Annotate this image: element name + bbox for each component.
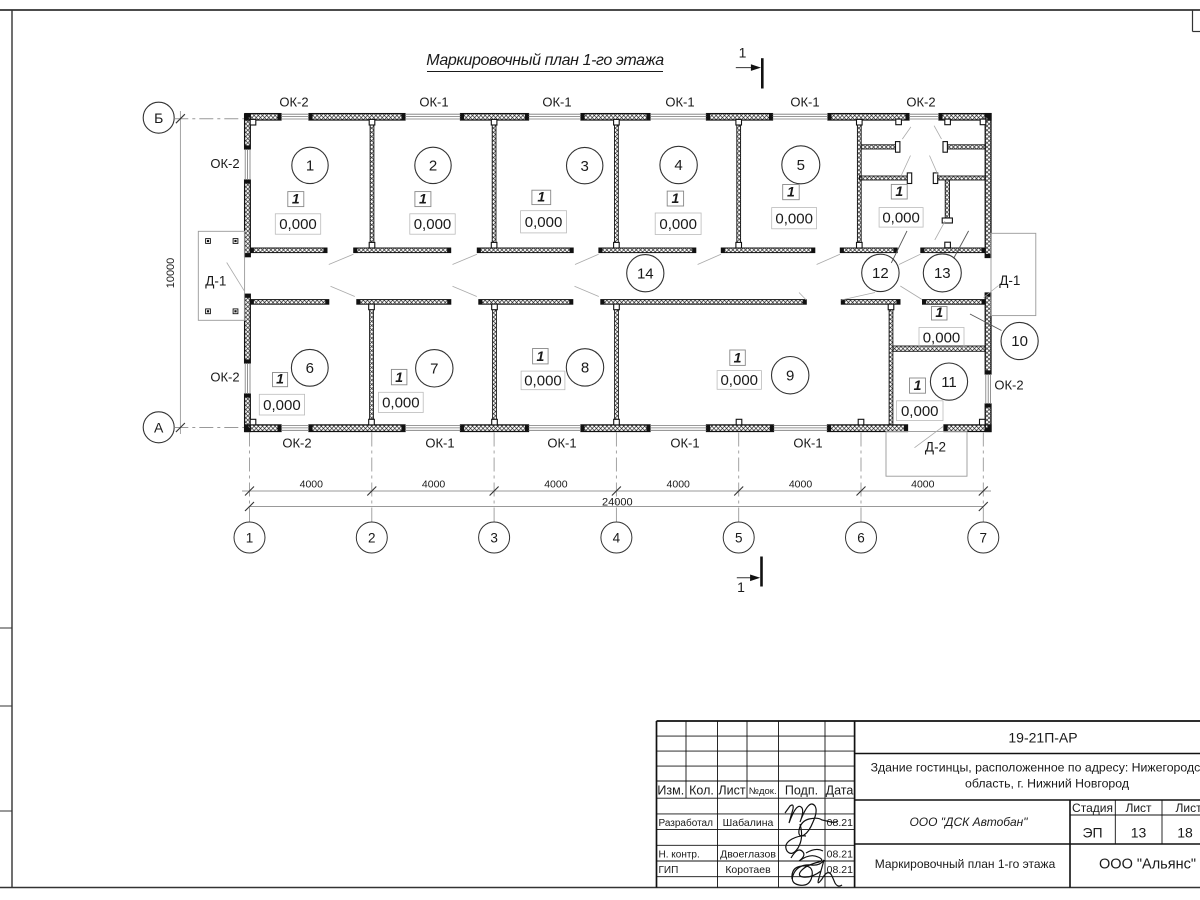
svg-text:08.21: 08.21 xyxy=(827,849,853,861)
svg-text:Д-1: Д-1 xyxy=(999,273,1020,288)
svg-text:ОК-2: ОК-2 xyxy=(282,436,311,451)
svg-text:0,000: 0,000 xyxy=(414,216,452,233)
svg-text:ОК-1: ОК-1 xyxy=(425,436,454,451)
svg-text:Разработал: Разработал xyxy=(659,817,714,829)
svg-text:4000: 4000 xyxy=(667,478,691,490)
svg-text:24000: 24000 xyxy=(602,497,633,509)
svg-text:4000: 4000 xyxy=(789,478,813,490)
svg-text:1: 1 xyxy=(419,191,427,207)
svg-text:3: 3 xyxy=(490,530,498,545)
svg-text:2: 2 xyxy=(368,530,376,545)
svg-text:Двоеглазов: Двоеглазов xyxy=(720,849,776,861)
svg-text:1: 1 xyxy=(246,530,254,545)
svg-text:6: 6 xyxy=(306,360,314,377)
svg-text:1: 1 xyxy=(787,184,795,200)
svg-text:А: А xyxy=(154,420,164,436)
svg-text:ОК-1: ОК-1 xyxy=(419,95,448,110)
svg-text:19-21П-АР: 19-21П-АР xyxy=(1008,730,1077,746)
svg-text:Лист: Лист xyxy=(718,784,745,798)
svg-text:9: 9 xyxy=(786,367,794,384)
svg-text:5: 5 xyxy=(797,157,805,174)
svg-text:Д-2: Д-2 xyxy=(925,440,946,455)
svg-text:Коротаев: Коротаев xyxy=(725,864,771,876)
svg-text:Шабалина: Шабалина xyxy=(723,817,774,829)
svg-text:1: 1 xyxy=(914,377,922,393)
svg-text:4000: 4000 xyxy=(911,478,935,490)
svg-text:Н. контр.: Н. контр. xyxy=(659,850,700,861)
svg-text:7: 7 xyxy=(430,361,438,378)
svg-text:ОК-1: ОК-1 xyxy=(665,95,694,110)
svg-text:0,000: 0,000 xyxy=(263,397,301,414)
svg-text:0,000: 0,000 xyxy=(901,403,939,420)
svg-text:ОК-2: ОК-2 xyxy=(210,370,239,385)
svg-text:ЭП: ЭП xyxy=(1082,825,1102,841)
svg-text:Маркировочный план 1-го этажа: Маркировочный план 1-го этажа xyxy=(426,52,664,69)
svg-text:11: 11 xyxy=(941,374,957,391)
svg-text:1: 1 xyxy=(537,189,545,205)
svg-text:1: 1 xyxy=(895,183,903,199)
svg-text:08.21: 08.21 xyxy=(827,817,853,829)
svg-text:ОК-2: ОК-2 xyxy=(994,378,1023,393)
svg-text:ОК-2: ОК-2 xyxy=(279,95,308,110)
svg-text:Лист: Лист xyxy=(1125,801,1152,815)
svg-text:ОК-2: ОК-2 xyxy=(210,156,239,171)
svg-text:12: 12 xyxy=(872,265,889,282)
svg-text:18: 18 xyxy=(1177,825,1193,841)
svg-text:Подп.: Подп. xyxy=(785,784,818,798)
svg-text:2: 2 xyxy=(429,158,437,175)
svg-text:область, г. Нижний Новгород: область, г. Нижний Новгород xyxy=(965,777,1129,791)
svg-text:ОК-1: ОК-1 xyxy=(790,95,819,110)
svg-text:4: 4 xyxy=(674,157,682,174)
svg-text:1: 1 xyxy=(737,579,745,595)
svg-text:Кол.: Кол. xyxy=(689,784,714,798)
svg-text:ООО "ДСК Автобан": ООО "ДСК Автобан" xyxy=(909,815,1028,829)
svg-text:0,000: 0,000 xyxy=(882,210,920,227)
svg-text:ОК-2: ОК-2 xyxy=(906,95,935,110)
svg-text:1: 1 xyxy=(672,190,680,206)
svg-text:0,000: 0,000 xyxy=(923,329,961,346)
svg-text:1: 1 xyxy=(536,348,544,364)
svg-text:8: 8 xyxy=(581,360,589,377)
svg-text:3: 3 xyxy=(581,158,589,175)
svg-text:10: 10 xyxy=(1011,333,1028,350)
svg-text:14: 14 xyxy=(637,265,654,282)
svg-text:ОК-1: ОК-1 xyxy=(542,95,571,110)
svg-text:Здание гостинцы, расположенное: Здание гостинцы, расположенное по адресу… xyxy=(871,761,1200,775)
svg-text:Д-1: Д-1 xyxy=(205,273,226,288)
svg-text:4: 4 xyxy=(613,530,621,545)
svg-text:ООО "Альянс": ООО "Альянс" xyxy=(1099,857,1196,873)
svg-text:4000: 4000 xyxy=(300,478,324,490)
svg-text:1: 1 xyxy=(306,158,314,175)
svg-text:1: 1 xyxy=(395,369,403,385)
svg-text:1: 1 xyxy=(276,371,284,387)
svg-text:7: 7 xyxy=(980,530,988,545)
svg-text:ГИП: ГИП xyxy=(659,865,679,876)
svg-text:Б: Б xyxy=(154,110,163,126)
svg-text:0,000: 0,000 xyxy=(279,216,317,233)
svg-text:1: 1 xyxy=(734,349,742,365)
svg-text:Изм.: Изм. xyxy=(657,784,684,798)
svg-text:10000: 10000 xyxy=(165,258,177,289)
svg-text:ОК-1: ОК-1 xyxy=(670,436,699,451)
svg-text:Стадия: Стадия xyxy=(1072,801,1113,815)
svg-text:4000: 4000 xyxy=(544,478,568,490)
svg-text:0,000: 0,000 xyxy=(525,214,563,231)
svg-text:0,000: 0,000 xyxy=(775,210,813,227)
svg-text:13: 13 xyxy=(1131,825,1147,841)
svg-text:Маркировочный план 1-го этажа: Маркировочный план 1-го этажа xyxy=(875,857,1056,871)
svg-text:4000: 4000 xyxy=(422,478,446,490)
svg-text:1: 1 xyxy=(739,45,747,61)
svg-text:№док.: №док. xyxy=(749,786,777,797)
svg-text:1: 1 xyxy=(292,191,300,207)
svg-text:1: 1 xyxy=(935,304,943,320)
svg-text:0,000: 0,000 xyxy=(720,372,758,389)
svg-text:ОК-1: ОК-1 xyxy=(547,436,576,451)
svg-text:13: 13 xyxy=(934,265,951,282)
svg-text:Листов: Листов xyxy=(1176,801,1200,815)
svg-text:5: 5 xyxy=(735,530,743,545)
svg-text:Дата: Дата xyxy=(826,784,854,798)
svg-text:ОК-1: ОК-1 xyxy=(793,436,822,451)
svg-text:0,000: 0,000 xyxy=(524,373,562,390)
svg-text:0,000: 0,000 xyxy=(659,216,697,233)
svg-text:0,000: 0,000 xyxy=(382,395,420,412)
svg-text:6: 6 xyxy=(857,530,865,545)
